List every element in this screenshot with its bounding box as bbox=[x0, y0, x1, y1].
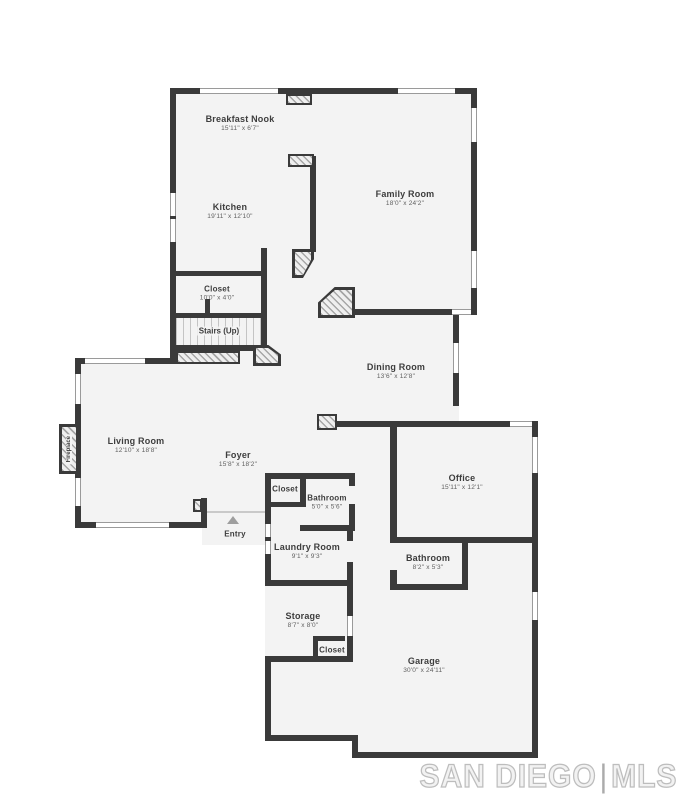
room-label-closet-upper: Closet 10'0" x 4'0" bbox=[200, 285, 234, 302]
room-label-breakfast-nook: Breakfast Nook 15'11" x 6'7" bbox=[206, 114, 275, 132]
watermark-separator: | bbox=[599, 758, 608, 794]
window bbox=[265, 541, 271, 554]
watermark-text-primary: SAN DIEGO bbox=[419, 758, 596, 794]
window bbox=[170, 193, 176, 216]
wall-segment bbox=[390, 584, 467, 590]
wall-segment bbox=[265, 656, 353, 662]
window bbox=[75, 374, 81, 404]
wall-segment bbox=[176, 271, 261, 276]
window bbox=[96, 522, 169, 528]
watermark-text-secondary: MLS bbox=[611, 758, 677, 794]
window bbox=[85, 358, 145, 364]
room-label-kitchen: Kitchen 19'11" x 12'10" bbox=[207, 202, 252, 220]
wall-segment bbox=[349, 473, 355, 486]
understair-hatch bbox=[176, 351, 240, 364]
wall-segment bbox=[265, 473, 355, 479]
room-label-foyer: Foyer 15'8" x 18'2" bbox=[219, 450, 257, 468]
room-label-entry: Entry bbox=[224, 530, 245, 539]
wall-segment bbox=[347, 525, 353, 541]
room-label-stairs: Stairs (Up) bbox=[196, 327, 242, 336]
fireplace-label: Fireplace bbox=[66, 434, 72, 464]
window bbox=[471, 251, 477, 288]
wall-segment bbox=[349, 504, 355, 525]
wall-end-hatch bbox=[193, 499, 202, 512]
room-label-office: Office 15'11" x 12'1" bbox=[441, 473, 483, 491]
wall-segment bbox=[310, 156, 316, 252]
wall-segment bbox=[313, 636, 345, 641]
window bbox=[398, 88, 455, 94]
room-label-family-room: Family Room 18'0" x 24'2" bbox=[376, 189, 435, 207]
wall-segment bbox=[335, 421, 393, 427]
entry-arrow-icon bbox=[227, 516, 239, 524]
wall-segment bbox=[265, 735, 358, 741]
wall-segment bbox=[265, 580, 353, 586]
room-label-storage: Storage 8'7" x 8'0" bbox=[286, 611, 321, 629]
chimney-hatch bbox=[288, 154, 314, 167]
window bbox=[532, 437, 538, 473]
fireplace: Fireplace bbox=[59, 424, 79, 474]
room-label-bathroom-small: Bathroom 5'0" x 5'6" bbox=[307, 494, 346, 511]
room-label-laundry-room: Laundry Room 9'1" x 9'3" bbox=[274, 542, 340, 560]
wall-segment bbox=[265, 502, 305, 507]
sandiego-mls-watermark: SAN DIEGO|MLS bbox=[419, 758, 677, 795]
window bbox=[510, 421, 532, 427]
window bbox=[453, 343, 459, 373]
room-label-closet-foyer: Closet bbox=[272, 485, 298, 494]
wall-segment bbox=[462, 537, 468, 590]
wall-segment bbox=[390, 421, 397, 537]
room-label-closet-garage: Closet bbox=[319, 646, 345, 655]
room-label-bathroom-lower: Bathroom 8'2" x 5'3" bbox=[406, 553, 450, 571]
wall-segment bbox=[453, 373, 459, 406]
window bbox=[452, 309, 471, 315]
window bbox=[75, 478, 81, 506]
floor-plan: Fireplace Breakfast Nook 15'11" x 6'7" K… bbox=[0, 0, 679, 797]
wall-segment bbox=[453, 315, 459, 343]
room-label-dining-room: Dining Room 13'6" x 12'8" bbox=[367, 362, 425, 380]
window bbox=[200, 88, 278, 94]
window bbox=[347, 616, 353, 636]
window bbox=[170, 219, 176, 242]
wall-segment bbox=[265, 662, 271, 741]
room-label-living-room: Living Room 12'10" x 18'8" bbox=[108, 436, 165, 454]
wall-segment bbox=[347, 580, 353, 618]
wall-segment bbox=[170, 313, 267, 318]
window bbox=[265, 524, 271, 537]
window bbox=[532, 592, 538, 620]
window bbox=[471, 108, 477, 142]
entry-threshold bbox=[207, 511, 265, 513]
wall-end-hatch bbox=[317, 414, 337, 430]
room-label-garage: Garage 30'0" x 24'11" bbox=[403, 656, 445, 674]
vent-hatch bbox=[286, 94, 312, 105]
